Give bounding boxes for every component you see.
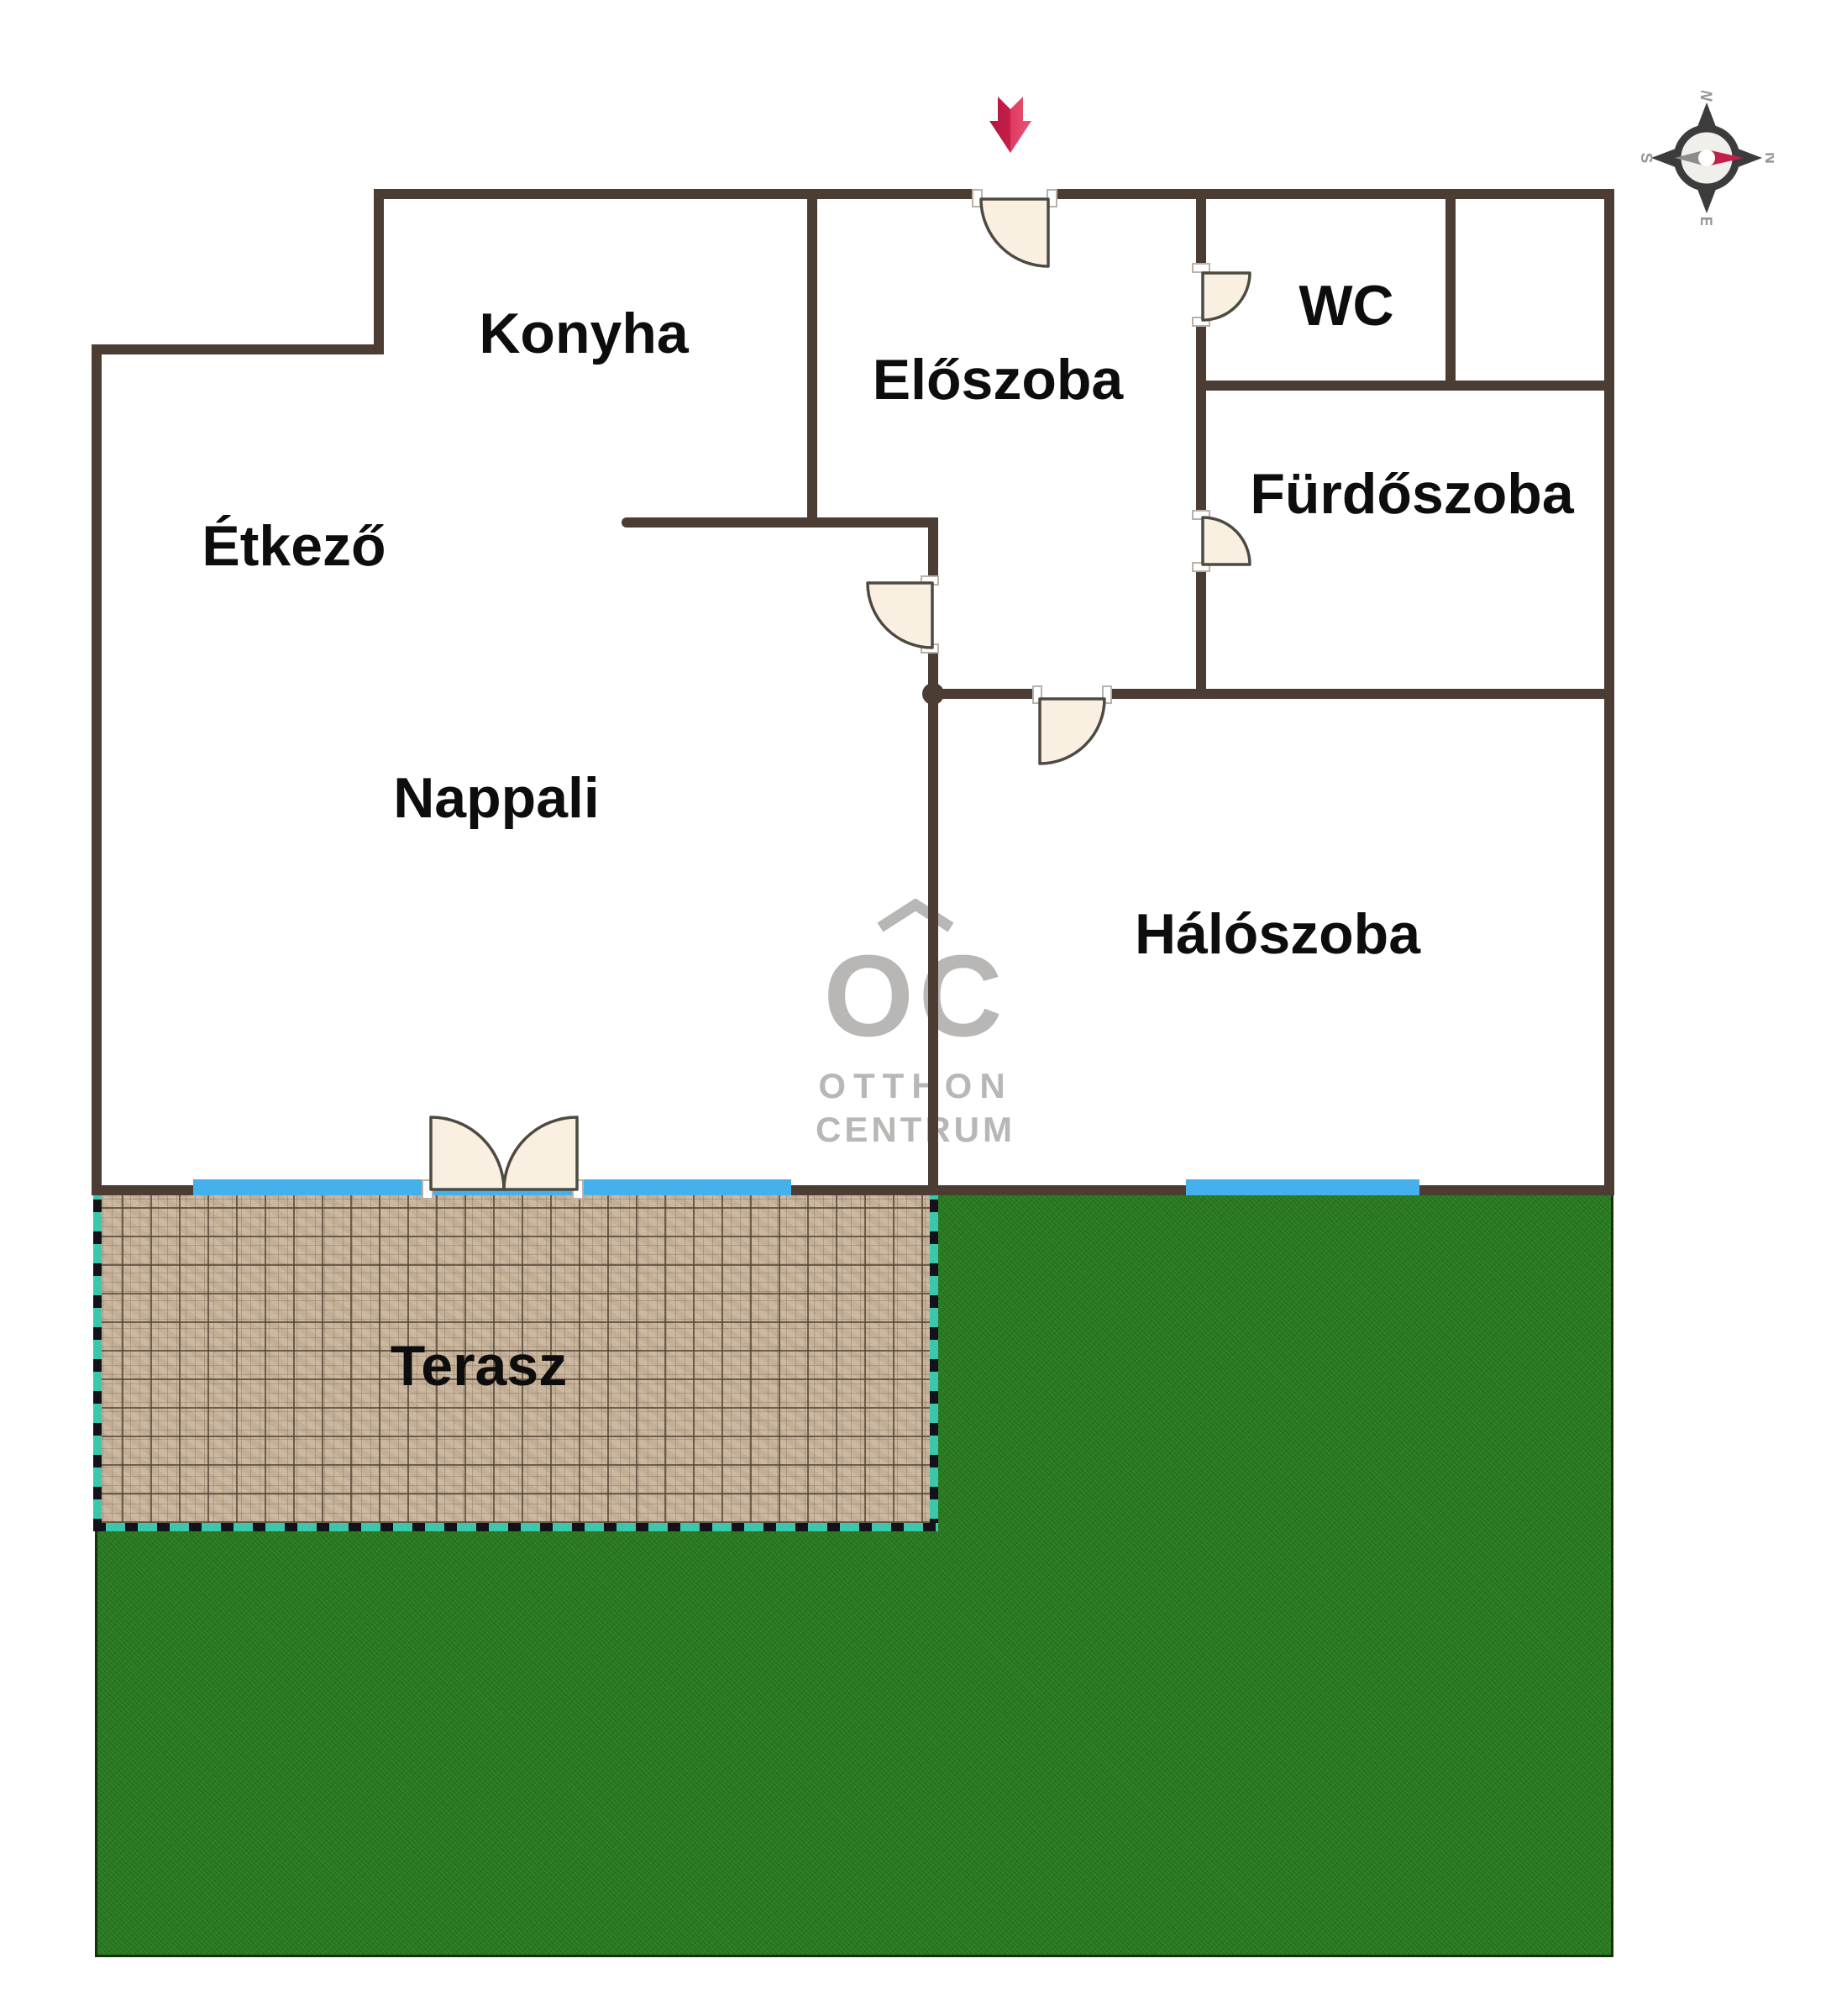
room-label-haloszoba: Hálószoba <box>1135 901 1420 967</box>
watermark-logo-text: OC <box>816 938 1015 1054</box>
wall-wc-right <box>1445 189 1456 391</box>
entrance-door <box>981 199 1048 266</box>
compass-label-e: E <box>1697 217 1714 225</box>
window-haloszoba <box>1186 1179 1419 1195</box>
compass-label-n: N <box>1761 152 1774 164</box>
terrace-dashed-border-right <box>930 1195 938 1531</box>
room-label-nappali: Nappali <box>393 765 600 831</box>
wall-outer-left <box>92 344 102 1195</box>
wall-nappali-divider-upper <box>928 517 938 582</box>
wall-nappali-haloszoba-divider <box>928 647 938 1195</box>
haloszoba-door <box>1040 699 1104 764</box>
terrace-dashed-border-left <box>93 1195 102 1531</box>
wall-top-right-of-entrance <box>1052 189 1614 199</box>
room-label-etkezo: Étkező <box>202 513 386 579</box>
room-label-wc: WC <box>1298 273 1393 339</box>
wall-top-left-of-entrance <box>374 189 978 199</box>
room-label-furdoszoba: Fürdőszoba <box>1250 461 1573 527</box>
wall-eloszoba-right-seg2 <box>1196 320 1206 517</box>
roof-chevron-icon <box>875 899 956 932</box>
room-label-eloszoba: Előszoba <box>873 347 1124 412</box>
wc-door <box>1203 273 1250 320</box>
wall-junction-dot <box>922 683 944 705</box>
furdoszoba-door <box>1203 517 1250 564</box>
watermark-line1: OTTHON <box>816 1066 1015 1106</box>
wall-step-horizontal <box>92 344 384 354</box>
wall-eloszoba-right-seg1 <box>1196 189 1206 271</box>
wall-bottom-seg2 <box>791 1185 1186 1195</box>
otthon-centrum-watermark: OC OTTHON CENTRUM <box>816 899 1015 1150</box>
nappali-door <box>868 583 932 648</box>
compass-label-w: W <box>1697 91 1714 102</box>
wall-wc-furdoszoba-divider <box>1196 381 1614 391</box>
floor-plan: OC OTTHON CENTRUM Konyha Előszoba WC Für… <box>0 0 1831 2016</box>
wall-bottom-seg3 <box>1419 1185 1614 1195</box>
wall-konyha-eloszoba-divider <box>807 189 817 528</box>
room-label-konyha: Konyha <box>479 301 688 366</box>
window-nappali <box>193 1179 791 1195</box>
room-label-terasz: Terasz <box>391 1333 567 1399</box>
wall-konyha-bottom <box>622 517 938 528</box>
wall-eloszoba-right-seg3 <box>1196 564 1206 699</box>
watermark-line2: CENTRUM <box>816 1110 1015 1150</box>
wall-haloszoba-top-seg2 <box>1104 689 1614 699</box>
wall-bottom-seg1 <box>92 1185 193 1195</box>
wall-haloszoba-top-seg1 <box>928 689 1039 699</box>
terrace-dashed-border-bottom <box>93 1523 938 1531</box>
compass-label-s: S <box>1640 153 1655 164</box>
entrance-arrow-icon <box>989 97 1031 153</box>
wall-konyha-left <box>374 189 384 354</box>
compass-icon: N S W E <box>1640 91 1774 225</box>
